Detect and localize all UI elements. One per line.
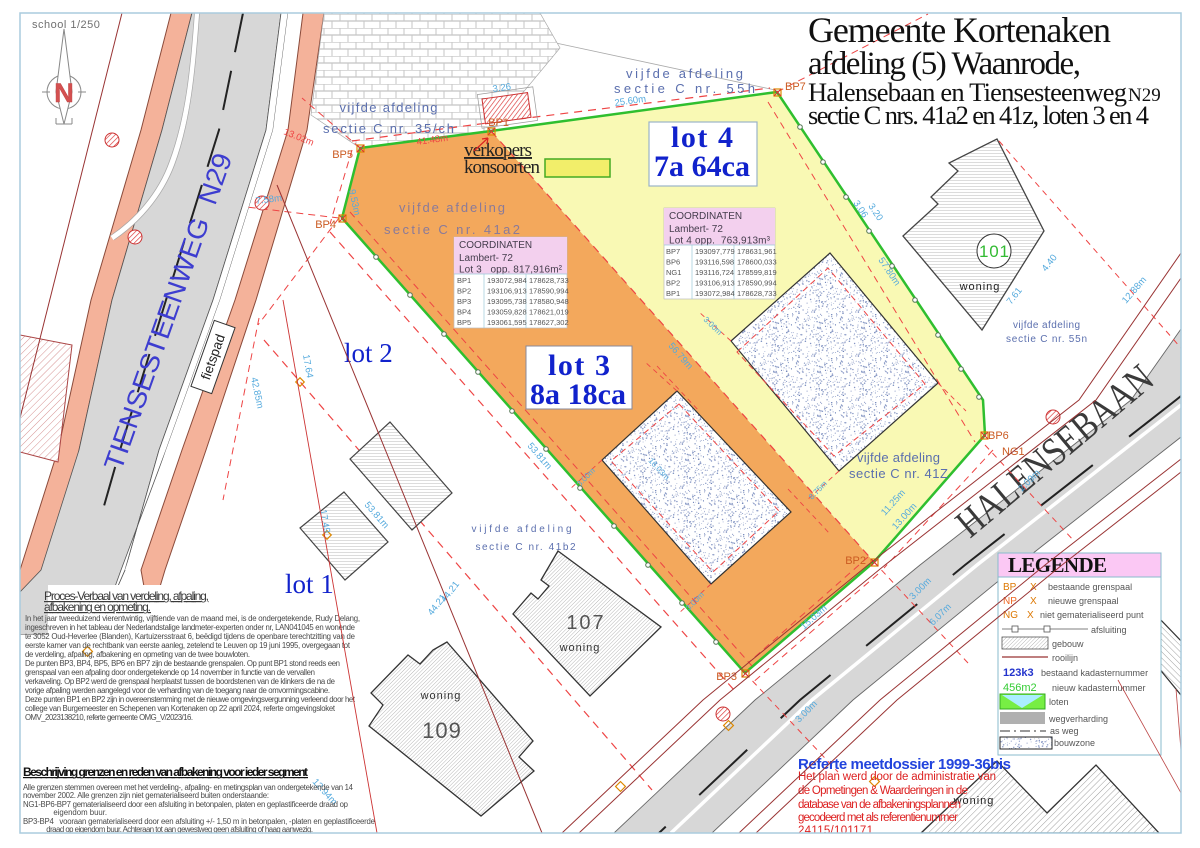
svg-text:178628,733: 178628,733 [529,276,569,285]
svg-text:nieuwe grenspaal: nieuwe grenspaal [1048,596,1119,606]
svg-text:BP5: BP5 [332,149,353,161]
svg-text:sectie C nr. 55n: sectie C nr. 55n [1006,334,1090,345]
svg-text:193106,913: 193106,913 [695,279,735,288]
svg-text:BP6: BP6 [988,430,1009,442]
svg-text:109: 109 [422,718,462,743]
svg-text:193106,913: 193106,913 [487,287,527,296]
svg-text:as weg: as weg [1050,726,1079,736]
svg-text:Deze punten BP1 en BP2 zijn in: Deze punten BP1 en BP2 zijn in overeenst… [25,695,356,704]
svg-text:BP4: BP4 [457,308,471,317]
svg-text:afbakening en opmeting.: afbakening en opmeting. [44,600,151,614]
svg-text:178590,994: 178590,994 [737,279,777,288]
svg-text:BP7: BP7 [666,247,680,256]
svg-text:Lambert- 72: Lambert- 72 [459,253,513,264]
svg-text:sectie C nr. 41Z: sectie C nr. 41Z [849,466,951,481]
svg-text:vorige afpaling werden aangele: vorige afpaling werden aangelegd voor de… [25,686,330,695]
svg-text:college van Burgemeester en Sc: college van Burgemeester en Schepenen va… [25,704,336,713]
svg-text:vijfde afdeling: vijfde afdeling [340,100,441,115]
svg-text:BP1: BP1 [666,289,680,298]
svg-text:BP1: BP1 [457,276,471,285]
svg-text:178628,733: 178628,733 [737,289,777,298]
svg-text:X: X [1030,582,1037,593]
svg-text:BP7: BP7 [785,81,806,93]
svg-text:193072,984: 193072,984 [695,289,735,298]
svg-text:gebouw: gebouw [1052,639,1084,649]
svg-text:Beschrijving grenzen en reden: Beschrijving grenzen en reden van afbake… [23,765,308,779]
svg-text:193116,598: 193116,598 [695,258,734,267]
svg-text:rooilijn: rooilijn [1052,653,1078,663]
svg-text:sectie C nrs. 41a2 en 41z, lot: sectie C nrs. 41a2 en 41z, loten 3 en 4 [808,100,1149,130]
svg-text:gecodeerd met als referentienu: gecodeerd met als referentienummer [798,812,958,824]
svg-text:193095,738: 193095,738 [487,297,527,306]
svg-text:bouwzone: bouwzone [1054,738,1095,748]
svg-text:vijfde afdeling: vijfde afdeling [857,450,943,465]
svg-text:afsluiting: afsluiting [1091,625,1127,635]
svg-text:sectie C nr. 55h: sectie C nr. 55h [614,81,758,96]
svg-text:woning: woning [559,642,601,654]
svg-text:BP5: BP5 [457,318,471,327]
svg-text:verkaveling. Op BP2 werd de gr: verkaveling. Op BP2 werd de grenspaal he… [25,677,335,686]
svg-text:178627,302: 178627,302 [529,318,569,327]
svg-text:NG1: NG1 [666,268,681,277]
svg-text:sectie C nr. 41b2: sectie C nr. 41b2 [476,542,579,553]
svg-text:Gemeente Kortenaken: Gemeente Kortenaken [808,10,1111,50]
svg-text:178580,948: 178580,948 [529,297,569,306]
svg-text:lot 1: lot 1 [285,569,334,599]
svg-text:178631,961: 178631,961 [737,247,777,256]
svg-text:BP: BP [1003,582,1017,593]
svg-text:OMV_2023138210, referte gemeen: OMV_2023138210, referte gemeente OMG_V/2… [25,713,193,722]
svg-text:niet gematerialiseerd punt: niet gematerialiseerd punt [1040,610,1144,620]
svg-text:BP1: BP1 [488,117,509,129]
svg-text:ingeschreven in het tableau de: ingeschreven in het tableau der Nederlan… [25,623,355,632]
svg-text:BP2: BP2 [845,555,866,567]
svg-text:123k3: 123k3 [1003,667,1034,679]
svg-text:7a 64ca: 7a 64ca [654,150,750,183]
svg-text:woning: woning [959,281,1001,293]
svg-text:BP3: BP3 [457,297,471,306]
svg-text:In het jaar tweeduizend vieren: In het jaar tweeduizend vierentwintig, v… [25,614,360,623]
svg-text:eigendom buur.: eigendom buur. [23,808,107,817]
svg-text:vijfde afdeling: vijfde afdeling [626,66,746,81]
svg-text:178621,019: 178621,019 [529,308,569,317]
svg-text:101: 101 [979,242,1009,261]
svg-text:bestaande grenspaal: bestaande grenspaal [1048,582,1132,592]
svg-text:COORDINATEN: COORDINATEN [459,240,532,251]
svg-text:konsoorten: konsoorten [464,157,541,178]
svg-text:de Opmetingen & Waarderingen i: de Opmetingen & Waarderingen in de [798,785,968,797]
svg-text:loten: loten [1049,697,1069,707]
svg-text:woning: woning [420,690,462,702]
svg-text:BP4: BP4 [315,219,336,231]
svg-text:8a 18ca: 8a 18ca [530,378,626,411]
svg-text:school 1/250: school 1/250 [32,19,100,31]
svg-text:de verdeling, afpaling, afbake: de verdeling, afpaling, afbakening en op… [25,650,250,659]
svg-text:BP2: BP2 [666,279,680,288]
svg-text:te 3052 Oud-Heverlee (Blanden): te 3052 Oud-Heverlee (Blanden), Kartuize… [25,632,355,641]
svg-text:eerste kamer van de rechtbank: eerste kamer van de rechtbank van eerste… [25,641,351,650]
svg-text:sectie C nr. 41a2: sectie C nr. 41a2 [384,222,520,237]
svg-text:BP6: BP6 [666,258,680,267]
svg-text:X: X [1027,610,1034,621]
svg-text:vijfde afdeling: vijfde afdeling [1013,320,1083,331]
svg-text:193116,724: 193116,724 [695,268,734,277]
svg-text:grenspaal van een afpaling doo: grenspaal van een afpaling door onderget… [25,668,315,677]
svg-text:456m2: 456m2 [1003,682,1037,694]
svg-text:vijfde afdeling: vijfde afdeling [399,200,505,215]
svg-text:De punten BP3, BP4, BP5, BP6 e: De punten BP3, BP4, BP5, BP6 en BP7 zijn… [25,659,340,668]
svg-text:Het plan werd door de adminis: Het plan werd door de administratie van [798,771,996,783]
svg-text:lot 2: lot 2 [344,338,393,368]
svg-text:BP2: BP2 [457,287,471,296]
svg-text:193061,595: 193061,595 [487,318,527,327]
svg-text:LEGENDE: LEGENDE [1008,553,1107,577]
svg-text:COORDINATEN: COORDINATEN [669,211,742,222]
svg-text:Lambert- 72: Lambert- 72 [669,224,723,235]
svg-text:X: X [1030,596,1037,607]
svg-text:database van de afbakeningspla: database van de afbakeningsplannen [798,799,961,811]
svg-text:193072,984: 193072,984 [487,276,527,285]
svg-text:107: 107 [566,612,605,634]
svg-text:178590,994: 178590,994 [529,287,569,296]
svg-text:178600,033: 178600,033 [737,258,777,267]
svg-text:N: N [54,78,74,108]
svg-text:193097,779: 193097,779 [695,247,735,256]
svg-text:178599,819: 178599,819 [737,268,777,277]
svg-text:nieuw kadasternummer: nieuw kadasternummer [1052,683,1146,693]
svg-text:wegverharding: wegverharding [1048,714,1108,724]
svg-text:193059,828: 193059,828 [487,308,527,317]
svg-text:vijfde afdeling: vijfde afdeling [472,524,575,535]
svg-text:november 2002. Alle grenzen zi: november 2002. Alle grenzen zijn niet ge… [23,791,269,800]
svg-text:bestaand kadasternummer: bestaand kadasternummer [1041,668,1148,678]
